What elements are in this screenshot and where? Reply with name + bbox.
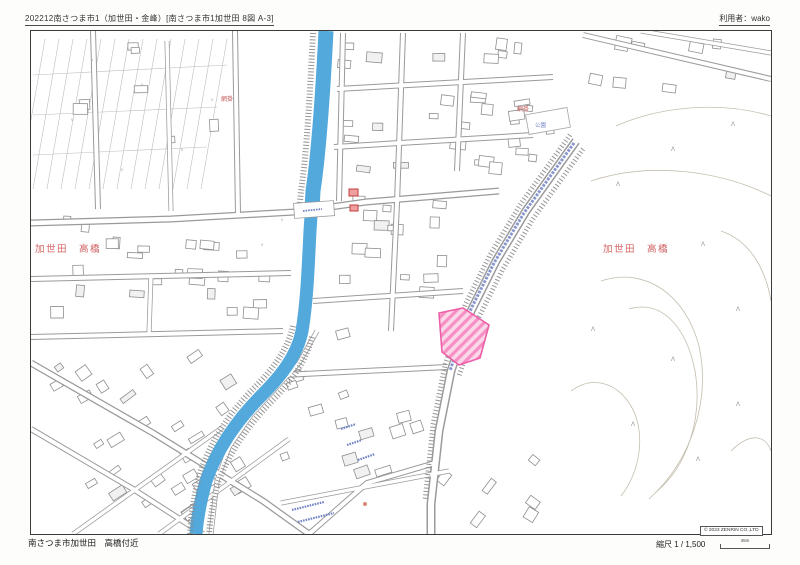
building bbox=[374, 221, 389, 231]
field-icon: v bbox=[181, 147, 184, 152]
building bbox=[489, 162, 503, 175]
building bbox=[120, 390, 136, 404]
map-sheet-title: 202212南さつま市1（加世田・金峰）[南さつま市1加世田 8図 A-3] bbox=[25, 13, 274, 26]
building bbox=[253, 300, 266, 309]
map-canvas: Λ Λ Λ Λ Λ Λ Λ Λ Λ Λ v v v v v v v v 加世田 … bbox=[30, 30, 772, 535]
vegetation-symbols: Λ Λ Λ Λ Λ Λ Λ Λ Λ Λ bbox=[591, 122, 740, 463]
building bbox=[344, 135, 359, 142]
building bbox=[410, 420, 424, 434]
building bbox=[131, 47, 139, 53]
building bbox=[354, 465, 371, 479]
building bbox=[498, 51, 508, 59]
building bbox=[336, 328, 351, 340]
building bbox=[107, 432, 124, 447]
roads bbox=[31, 31, 771, 534]
building bbox=[339, 275, 350, 283]
field-strip bbox=[187, 39, 213, 189]
vegetation-icon: Λ bbox=[736, 402, 740, 408]
road bbox=[337, 77, 553, 89]
road bbox=[391, 33, 403, 331]
farmland-strips bbox=[31, 39, 227, 189]
building bbox=[140, 364, 154, 378]
vegetation-icon: Λ bbox=[696, 457, 700, 463]
building bbox=[186, 240, 197, 250]
building bbox=[526, 495, 541, 509]
building bbox=[138, 246, 150, 252]
road bbox=[313, 291, 463, 301]
building bbox=[484, 54, 499, 64]
building bbox=[470, 511, 485, 527]
building bbox=[171, 482, 185, 495]
building bbox=[280, 452, 290, 461]
building bbox=[523, 507, 539, 523]
building bbox=[171, 421, 184, 432]
building bbox=[481, 104, 493, 116]
area-caption: 南さつま市加世田 高橋付近 bbox=[28, 537, 139, 549]
building bbox=[383, 205, 391, 212]
road-casing bbox=[309, 463, 435, 534]
building bbox=[365, 248, 381, 258]
building bbox=[76, 285, 85, 297]
scale-bar-line bbox=[720, 544, 770, 549]
building bbox=[440, 95, 454, 106]
vegetation-icon: Λ bbox=[671, 357, 675, 363]
building bbox=[127, 252, 142, 258]
building bbox=[389, 424, 405, 439]
building bbox=[237, 251, 248, 258]
district-label-right: 加世田 高橋 bbox=[603, 243, 669, 255]
road bbox=[334, 135, 533, 147]
field-strip bbox=[103, 39, 129, 189]
building bbox=[495, 38, 507, 51]
vegetation-icon: Λ bbox=[736, 307, 740, 313]
map-drawing: Λ Λ Λ Λ Λ Λ Λ Λ Λ Λ v v v v v v v v 加世田 … bbox=[31, 31, 771, 534]
building bbox=[75, 365, 92, 382]
building bbox=[471, 92, 487, 99]
building bbox=[397, 410, 412, 423]
user-label: 利用者：wako bbox=[719, 13, 770, 26]
field-strip bbox=[131, 39, 157, 189]
building bbox=[588, 73, 602, 86]
scale-bar: 45m bbox=[720, 540, 770, 549]
building bbox=[433, 53, 445, 61]
vegetation-icon: Λ bbox=[616, 182, 620, 188]
road bbox=[583, 35, 771, 79]
building bbox=[359, 428, 374, 440]
road bbox=[641, 31, 771, 53]
building bbox=[482, 478, 496, 494]
building bbox=[209, 119, 218, 131]
building bbox=[342, 452, 358, 466]
building bbox=[216, 402, 229, 416]
building bbox=[433, 200, 447, 208]
building bbox=[424, 274, 439, 283]
building bbox=[363, 210, 377, 221]
place-label-amikake-east: 網掛 bbox=[517, 105, 529, 113]
building bbox=[94, 439, 104, 448]
terrain-contours bbox=[571, 107, 771, 499]
red-building-mark bbox=[350, 205, 358, 211]
building bbox=[220, 374, 237, 390]
field-strip bbox=[31, 39, 45, 189]
field-strip bbox=[33, 65, 227, 75]
building bbox=[437, 255, 447, 267]
building bbox=[130, 290, 145, 298]
district-label-left: 加世田 高橋 bbox=[35, 243, 101, 255]
vegetation-icon: Λ bbox=[591, 327, 595, 333]
vegetation-icon: Λ bbox=[631, 422, 635, 428]
building bbox=[528, 154, 537, 162]
road bbox=[167, 41, 171, 211]
red-dot-mark bbox=[363, 502, 367, 506]
building bbox=[85, 478, 97, 488]
road bbox=[93, 31, 98, 209]
building bbox=[338, 390, 349, 399]
field-strip bbox=[201, 39, 227, 189]
field-icon: v bbox=[211, 97, 214, 102]
building bbox=[429, 113, 438, 118]
vegetation-icon: Λ bbox=[671, 147, 675, 153]
copyright-label: © 2023 ZENRIN CO.,LTD bbox=[700, 526, 763, 536]
building bbox=[227, 307, 237, 315]
road bbox=[149, 275, 151, 333]
building bbox=[662, 83, 676, 93]
building bbox=[613, 77, 626, 88]
park-label: 公園 bbox=[535, 122, 547, 129]
building bbox=[430, 217, 440, 228]
building bbox=[96, 380, 109, 393]
building bbox=[308, 404, 323, 416]
building bbox=[400, 274, 409, 280]
building bbox=[187, 349, 203, 363]
building bbox=[54, 363, 63, 372]
building bbox=[73, 104, 87, 115]
place-label-amikake-west: 網掛 bbox=[221, 95, 233, 103]
building bbox=[516, 148, 529, 155]
building bbox=[200, 240, 214, 250]
highlight-parcel bbox=[439, 308, 489, 365]
building bbox=[514, 42, 522, 54]
bridge bbox=[294, 201, 335, 219]
building bbox=[106, 239, 118, 249]
building bbox=[373, 123, 383, 131]
vegetation-icon: Λ bbox=[731, 122, 735, 128]
road bbox=[309, 463, 435, 534]
field-icon: v bbox=[281, 217, 284, 222]
building bbox=[207, 288, 215, 299]
field-icon: v bbox=[121, 167, 124, 172]
red-building-mark bbox=[349, 189, 358, 196]
building bbox=[528, 454, 540, 465]
building bbox=[356, 165, 370, 173]
building bbox=[366, 52, 382, 63]
field-icon: v bbox=[261, 242, 264, 247]
scale-bar-distance: 45m bbox=[720, 538, 770, 544]
scale-label: 縮尺 1 / 1,500 bbox=[656, 539, 705, 550]
map-labels: 加世田 高橋 加世田 高橋 網掛 網掛 公園 bbox=[35, 95, 669, 255]
building bbox=[243, 307, 259, 319]
vegetation-icon: Λ bbox=[701, 242, 705, 248]
building bbox=[51, 306, 64, 318]
field-strip bbox=[173, 39, 199, 189]
